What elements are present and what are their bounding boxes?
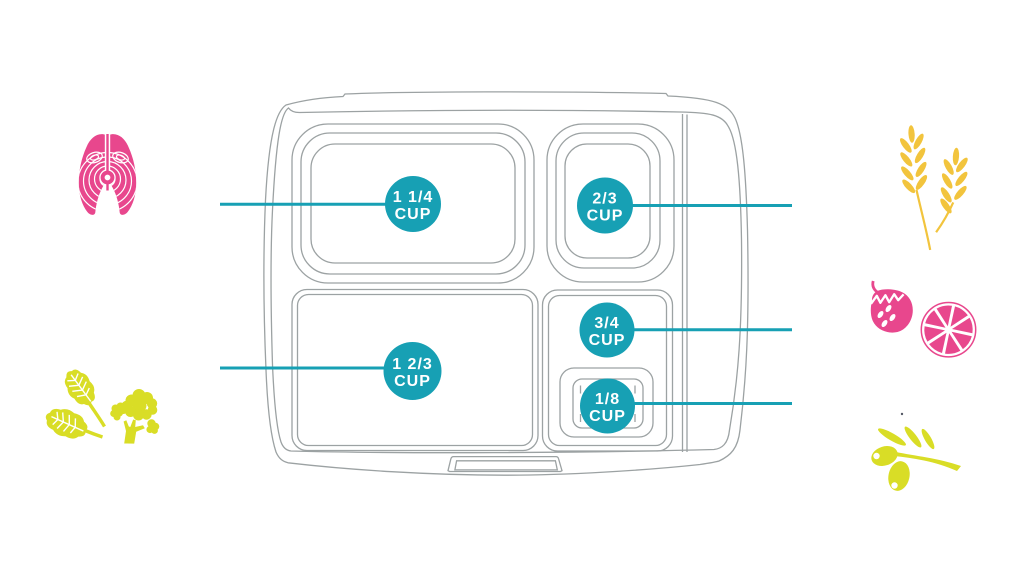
svg-text:3/4: 3/4 [594,315,619,332]
svg-text:CUP: CUP [589,332,626,349]
svg-text:1 2/3: 1 2/3 [392,356,433,373]
svg-text:CUP: CUP [589,408,626,425]
svg-text:CUP: CUP [395,206,432,223]
svg-text:1/8: 1/8 [595,391,620,408]
svg-text:CUP: CUP [394,373,431,390]
svg-text:2/3: 2/3 [592,191,617,208]
svg-text:CUP: CUP [587,208,624,225]
svg-text:1 1/4: 1 1/4 [393,189,434,206]
